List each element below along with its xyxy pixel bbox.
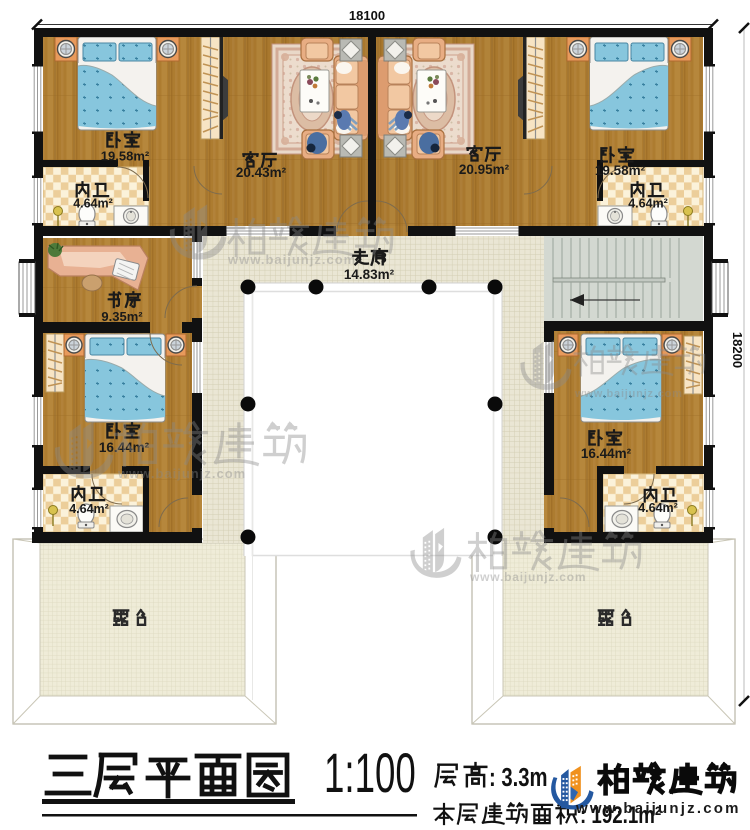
- svg-text:www.baijunjz.com: www.baijunjz.com: [469, 570, 586, 584]
- svg-text:14.83m²: 14.83m²: [344, 267, 395, 282]
- svg-text:www.baijunjz.com: www.baijunjz.com: [575, 800, 741, 817]
- svg-text:18100: 18100: [349, 8, 385, 23]
- svg-text:www.baijunjz.com: www.baijunjz.com: [227, 252, 356, 267]
- svg-text:www.baijunjz.com: www.baijunjz.com: [574, 388, 683, 400]
- svg-text:1:100: 1:100: [324, 742, 416, 805]
- svg-text:4.64m²: 4.64m²: [69, 502, 109, 516]
- svg-text:19.58m²: 19.58m²: [595, 163, 646, 178]
- svg-text:19.58m²: 19.58m²: [101, 149, 150, 164]
- svg-text:4.64m²: 4.64m²: [638, 501, 678, 515]
- svg-text:18200: 18200: [730, 332, 745, 368]
- svg-text:: 3.3m: : 3.3m: [489, 763, 548, 792]
- svg-text:20.43m²: 20.43m²: [236, 165, 287, 180]
- svg-text:www.baijunjz.com: www.baijunjz.com: [117, 466, 246, 481]
- svg-text:16.44m²: 16.44m²: [581, 446, 632, 461]
- svg-text:4.64m²: 4.64m²: [73, 197, 113, 211]
- svg-text:4.64m²: 4.64m²: [628, 197, 668, 211]
- svg-text:20.95m²: 20.95m²: [459, 162, 510, 177]
- svg-text:9.35m²: 9.35m²: [101, 309, 143, 324]
